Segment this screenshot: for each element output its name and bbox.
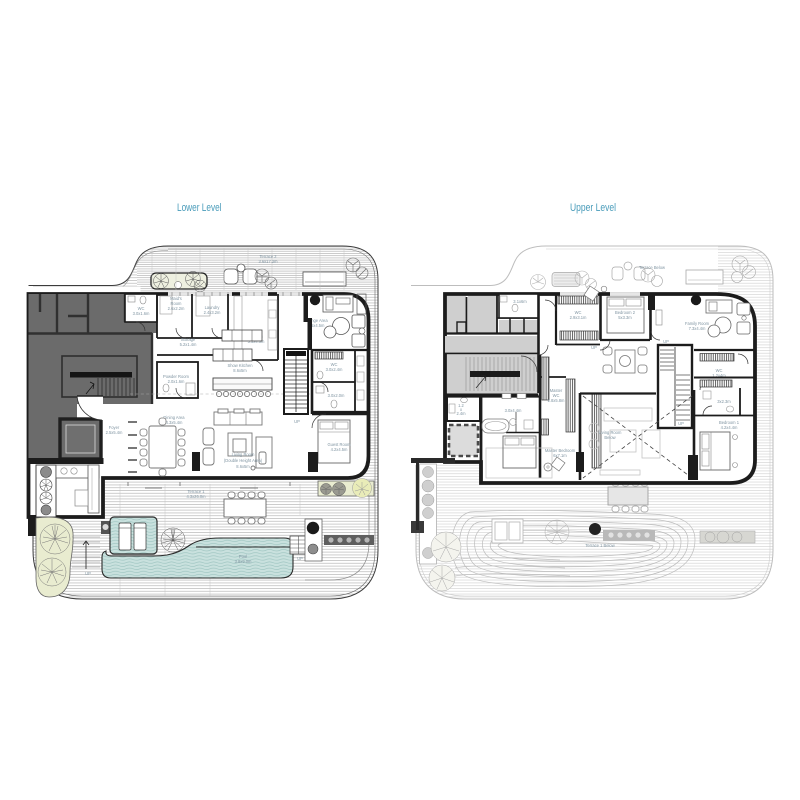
svg-text:2.4x3.2m: 2.4x3.2m (204, 310, 221, 315)
svg-text:5.2x1.4m: 5.2x1.4m (180, 342, 197, 347)
svg-text:4.3x26.0m: 4.3x26.0m (186, 494, 206, 499)
svg-text:UP: UP (297, 556, 303, 561)
svg-text:2.0x1.6m: 2.0x1.6m (168, 379, 185, 384)
svg-text:7.3x4.4m: 7.3x4.4m (689, 326, 706, 331)
svg-text:3.6x17.2m: 3.6x17.2m (258, 259, 278, 264)
svg-text:UP: UP (85, 571, 91, 576)
svg-text:2.8x5.8m: 2.8x5.8m (548, 398, 565, 403)
svg-text:3.0x2.4m: 3.0x2.4m (326, 367, 343, 372)
svg-text:Living Room: Living Room (232, 452, 255, 457)
svg-text:UP: UP (591, 345, 597, 350)
svg-text:4.3x5.4m: 4.3x5.4m (166, 420, 183, 425)
svg-text:3.0x1.6m: 3.0x1.6m (133, 311, 150, 316)
svg-text:Terrace 1 Below: Terrace 1 Below (585, 543, 614, 548)
svg-text:3.0x4.4m: 3.0x4.4m (505, 408, 522, 413)
svg-text:2.5x5.4m: 2.5x5.4m (106, 430, 123, 435)
svg-text:(Double Height Area): (Double Height Area) (224, 458, 263, 463)
svg-text:4.2x4.5m: 4.2x4.5m (331, 447, 348, 452)
svg-text:2.6x2.2m: 2.6x2.2m (168, 306, 185, 311)
svg-text:2.9x3.1m: 2.9x3.1m (570, 315, 587, 320)
svg-text:UP: UP (678, 421, 684, 426)
svg-text:8.6x5m: 8.6x5m (236, 464, 250, 469)
svg-text:UP: UP (294, 419, 300, 424)
svg-text:UP: UP (663, 339, 669, 344)
svg-text:3.0x2.0m: 3.0x2.0m (328, 393, 345, 398)
svg-text:8.6x5m: 8.6x5m (233, 368, 247, 373)
svg-text:Below: Below (604, 435, 615, 440)
svg-text:4.2x4.4m: 4.2x4.4m (721, 425, 738, 430)
svg-text:Lower Level: Lower Level (177, 202, 222, 214)
svg-text:3.8x9.0m: 3.8x9.0m (235, 559, 252, 564)
svg-text:6x7.1m: 6x7.1m (553, 453, 567, 458)
svg-text:Upper Level: Upper Level (570, 202, 616, 214)
svg-text:3.1x6m: 3.1x6m (513, 299, 527, 304)
svg-text:5x3.3m: 5x3.3m (618, 315, 632, 320)
svg-text:2.4m: 2.4m (456, 411, 466, 416)
svg-text:3x2.3m: 3x2.3m (717, 399, 731, 404)
